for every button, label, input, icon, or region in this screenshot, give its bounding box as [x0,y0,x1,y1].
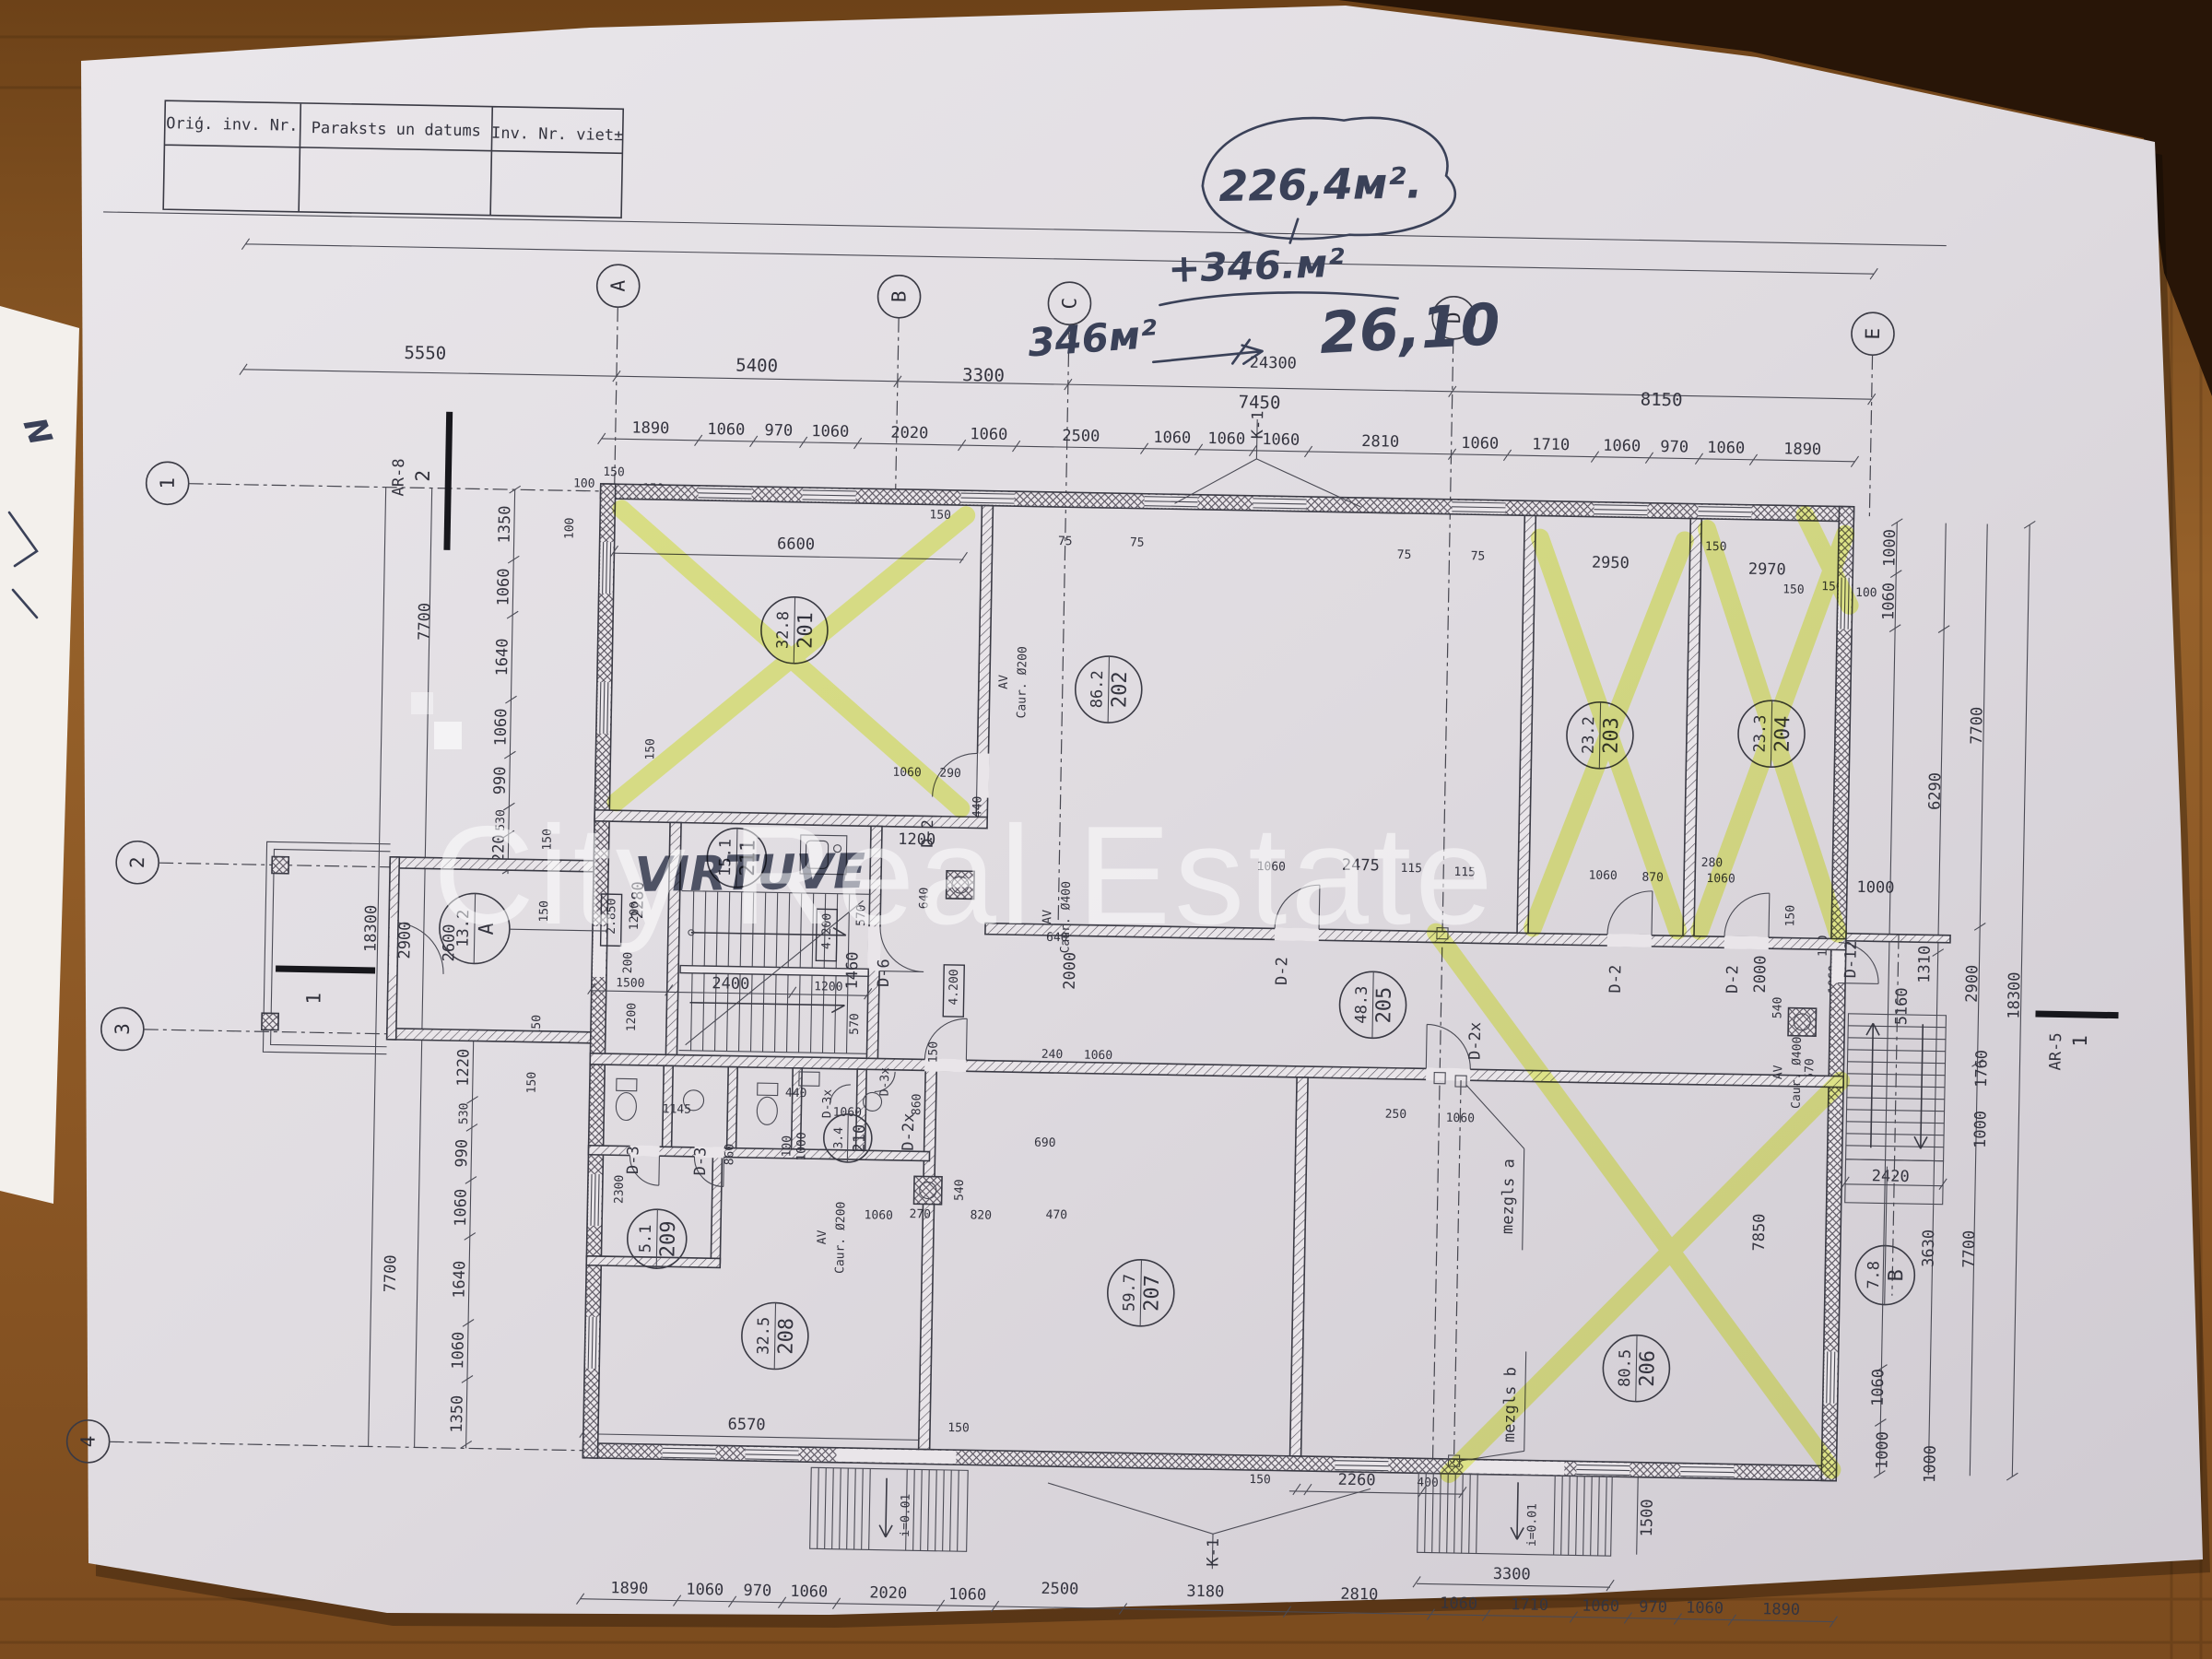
grid-col-a: A [607,279,629,291]
dim: 1060 [1440,1594,1477,1614]
dim: 1000 [794,1132,809,1161]
section-1-number: 1 [2069,1035,2091,1047]
caur-label: Caur. Ø200 [1015,646,1030,719]
av-label: AV [997,675,1011,689]
dim: 150 [947,1421,970,1435]
dim: 2000 [1061,952,1080,990]
dim: 1060 [1869,1369,1888,1406]
dim: 7700 [382,1254,401,1292]
dim: 1200 [625,1003,640,1032]
dim: 1060 [707,420,745,440]
dim-total-24300: 24300 [1250,354,1298,373]
dim: 1350 [496,505,515,543]
room-area: 32.5 [754,1317,773,1355]
dim: 1060 [790,1583,828,1602]
dim: 150 [643,738,657,760]
dim: 540 [1771,997,1784,1019]
dim: 1350 [448,1395,467,1433]
handwritten-346: 346м² [1027,312,1159,366]
dim: 75 [1130,535,1145,549]
room-number: 206 [1636,1350,1660,1387]
dim: 1890 [631,418,669,438]
dim: 100 [780,1135,794,1158]
dim: 1060 [864,1208,893,1223]
room-number: B [1885,1269,1908,1282]
dim: 860 [910,1093,924,1115]
door-label-d2x: D-2x [1465,1022,1485,1060]
dim: 8150 [1641,390,1683,411]
dim: 75 [1058,535,1073,548]
dim: 1460 [843,951,863,989]
photo-of-floor-plan: N Oriģ. inv. Nr. Paraksts un datums Inv.… [0,0,2212,1659]
dim: 570 [848,1013,862,1035]
dim: 3300 [1493,1565,1531,1584]
dim: 150 [525,1072,539,1094]
dim: 75 [1397,548,1412,562]
dim: 3630 [1919,1230,1938,1267]
dim: 2900 [1963,965,1983,1003]
dim: 7700 [416,603,435,641]
door-label-d3x: D-3x [820,1089,835,1119]
room-209: 209 5.1 [627,1209,687,1269]
dim: 18300 [361,905,381,953]
dim: 7700 [1968,707,1987,745]
dim: 250 [1385,1108,1407,1122]
door-label-d12: D-12 [1841,940,1861,978]
dim: 1060 [1707,439,1745,458]
table-header-inv-viet: Inv. Nr. viet± [491,124,624,146]
dim: 540 [953,1179,967,1201]
av-label: AV [816,1230,829,1244]
k1-label: K-1 [1204,1538,1223,1567]
grid-row-4: 4 [77,1435,100,1447]
dim: 7850 [1750,1213,1770,1251]
room-area: 48.3 [1352,985,1371,1023]
dim: 6600 [777,535,815,554]
dim: 150 [1783,905,1797,927]
dim: 1060 [686,1581,724,1600]
dim: 2500 [1062,427,1100,446]
dim: 1060 [452,1189,471,1227]
section-1-ref: AR-5 [2046,1032,2065,1070]
dim: 3300 [962,365,1005,386]
room-number: 202 [1108,671,1132,708]
dim: 1500 [1638,1499,1657,1536]
dim: 150 [603,465,625,479]
dim: 1060 [1603,437,1641,456]
caur-label: Caur. Ø200 [833,1202,848,1275]
room-area: 7.8 [1865,1261,1884,1289]
room-number: 207 [1140,1275,1164,1312]
dim: 1000 [1873,1431,1892,1469]
dim: 1500 [616,976,645,991]
dim: 18300 [2005,971,2024,1019]
door-label-d3: D-3 [624,1146,643,1174]
dim: 100 [563,517,577,539]
dim: 1060 [1207,429,1245,449]
dim: 2400 [712,974,749,994]
dim: 690 [1034,1136,1056,1150]
room-number: 205 [1372,986,1396,1023]
dim: 1640 [493,638,512,676]
dim: 1890 [610,1579,648,1598]
handwritten-circled-area: 226,4м². [1218,158,1423,211]
dim: 1060 [1879,582,1899,620]
dim: 1710 [1511,1595,1548,1615]
mezgls-a-label: mezgls a [1499,1159,1518,1234]
dim: 1060 [833,1106,863,1121]
section-2-number: 2 [412,470,434,482]
room-area: 3.4 [832,1127,846,1149]
dim: 530 [457,1102,471,1124]
dim: 1060 [1686,1599,1724,1618]
section-2-ref: AR-8 [390,458,409,496]
dim: 470 [1045,1208,1067,1222]
caur-label: Caur. Ø400 [1790,1037,1805,1110]
dim: 1060 [948,1585,986,1605]
dim: 75 [1471,549,1486,563]
dim: 400 [1417,1476,1439,1489]
dim: 6570 [727,1416,765,1435]
scene: N Oriģ. inv. Nr. Paraksts un datums Inv.… [0,0,2212,1659]
dim: 1000 [1971,1111,1991,1148]
dim: 990 [491,766,511,794]
dim: 1000 [1880,529,1900,567]
grid-col-e: E [1862,328,1884,340]
handwritten-result: 26,10 [1318,290,1502,367]
dim: 2300 [612,1175,627,1205]
door-label-d3x: D-3x [878,1067,893,1097]
dim: 1060 [494,568,513,606]
dim: 1890 [1783,440,1821,459]
dim: 200 [621,952,635,974]
watermark-logo-square [434,722,462,749]
grid-col-c: C [1058,298,1080,310]
dim: 7450 [1238,393,1280,414]
level-label: 4.200 [947,969,961,1005]
door-label-d2: D-2 [1606,965,1626,994]
room-area: 86.2 [1088,670,1107,708]
door-label-d2: D-2 [1273,957,1292,985]
room-number: 210 [851,1124,870,1153]
dim: 2970 [1748,560,1786,580]
door-label-d2: D-2 [1724,965,1743,994]
av-label: AV [1771,1065,1785,1079]
slope-label: i=0.01 [1525,1503,1540,1547]
dim: 2950 [1592,554,1630,573]
watermark-logo-square [411,692,433,714]
room-number: 209 [656,1220,680,1257]
dim: 7700 [1959,1230,1979,1268]
dim: 860 [723,1144,736,1166]
k1-label: K-1 [1249,410,1268,439]
dim: 2500 [1041,1580,1078,1599]
dim: 2810 [1340,1585,1378,1605]
grid-row-3: 3 [112,1023,134,1035]
dim: 1000 [1856,878,1894,898]
dim: 1640 [451,1261,470,1299]
dim: 1200 [814,980,843,994]
dim: 970 [1660,438,1688,457]
table-header-paraksts: Paraksts un datums [311,119,481,140]
watermark-text: City Real Estate [433,797,1497,954]
dim: 150 [926,1041,940,1064]
dim: 1060 [1153,429,1191,448]
dim: 1000 [1921,1445,1940,1483]
grid-row-2: 2 [126,856,148,868]
dim: 2000 [1751,955,1771,993]
dim: 270 [909,1207,931,1221]
dim: 6290 [1926,772,1946,810]
dim: 2020 [869,1583,907,1603]
dim: 5550 [404,343,446,364]
dim: 970 [743,1582,771,1601]
dim: 1060 [1461,434,1499,453]
dim: 1890 [1762,1600,1800,1619]
room-area: 80.5 [1616,1349,1635,1387]
dim: 100 [573,477,595,490]
dim: 2810 [1361,432,1399,452]
dim: 240 [1041,1048,1064,1062]
door-label-d6: D-6 [875,959,894,987]
dim: 100 [1855,586,1877,600]
dim: 1060 [970,425,1007,444]
porch-section-number: 1 [302,993,324,1005]
dim: 1060 [1588,869,1618,884]
dim: 1710 [1532,435,1570,454]
dim: 290 [939,767,961,781]
dim: 1220 [454,1049,474,1087]
dim: 970 [764,421,793,441]
dim: 3180 [1186,1583,1224,1602]
room-number: 208 [775,1318,799,1355]
dim: 5400 [735,356,778,377]
dim: 820 [970,1208,992,1222]
door-label-d2x: D-2x [900,1112,919,1150]
dim: 2260 [1337,1471,1375,1490]
slope-label: i=0.01 [899,1494,913,1537]
dim: 150 [1783,582,1805,596]
dim: 970 [1639,1598,1667,1618]
table-header-orig-inv: Oriģ. inv. Nr. [166,114,299,135]
dim: 1060 [492,708,512,746]
handwritten-added-area: +346.м² [1167,241,1346,292]
grid-col-b: B [888,290,910,302]
dim: 150 [1249,1473,1271,1487]
dim: 440 [785,1087,807,1100]
dim: 1760 [1972,1050,1992,1088]
dim: 1060 [1582,1597,1619,1617]
dim: 1145 [663,1102,692,1117]
dim: 2020 [890,424,928,443]
dim: 1060 [811,422,849,441]
dim: 1060 [1446,1112,1476,1126]
dim: 1310 [1915,946,1935,983]
dim: 2420 [1872,1167,1910,1186]
room-area: 59.7 [1120,1274,1139,1312]
room-area: 5.1 [637,1224,656,1253]
door-label-d3: D-3 [691,1147,711,1175]
grid-row-1: 1 [157,477,179,489]
dim: 5160 [1892,987,1912,1025]
dim: 990 [453,1139,472,1168]
dim: 1060 [1084,1049,1113,1064]
dim: 1060 [449,1332,468,1370]
dim: 1060 [1262,430,1300,450]
